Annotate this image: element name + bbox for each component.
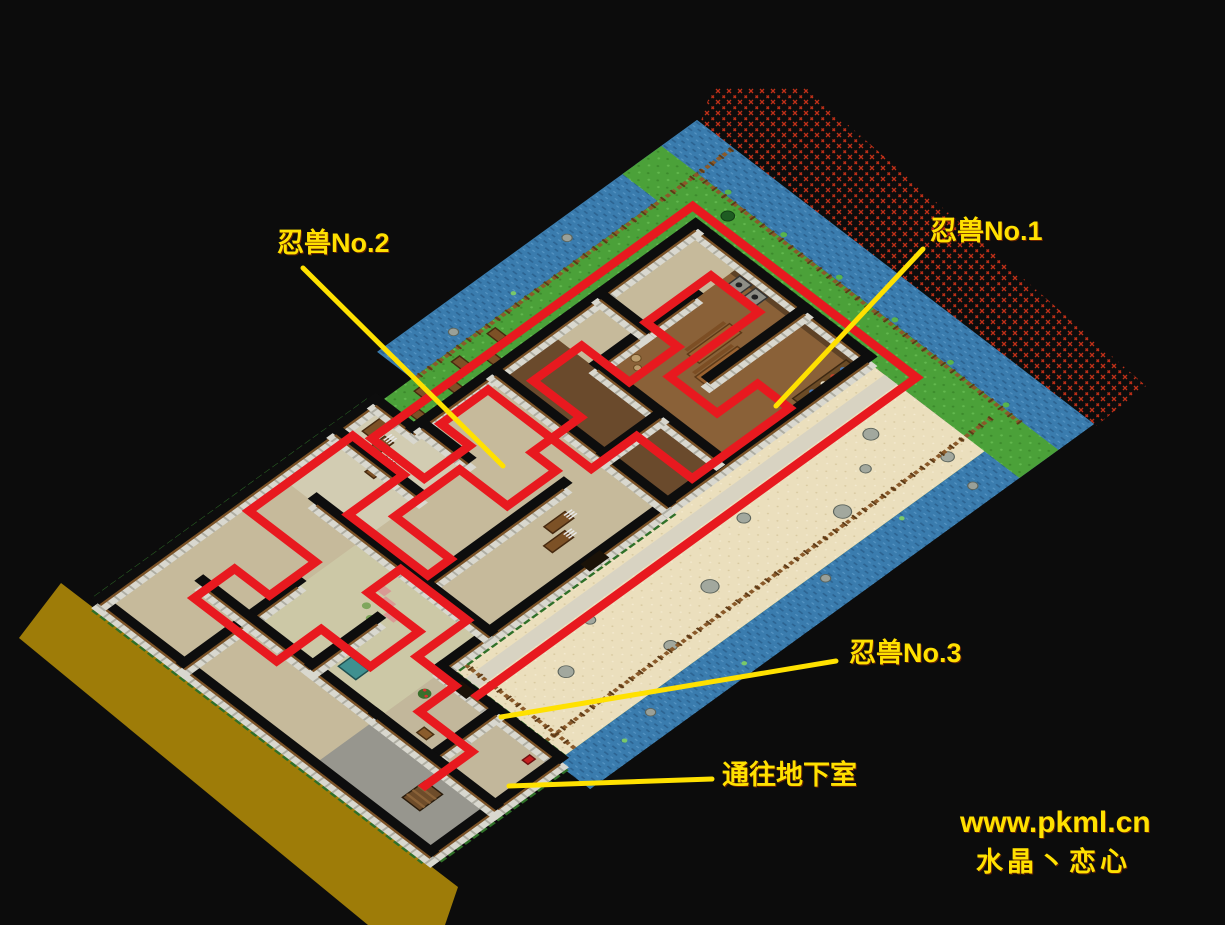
annotation-label-ninja2: 忍兽No.2	[277, 230, 390, 257]
watermark-site: www.pkml.cn	[960, 808, 1151, 838]
watermark-credit: 水晶丶恋心	[976, 849, 1131, 876]
annotation-label-ninja1: 忍兽No.1	[930, 218, 1043, 245]
annotation-label-basement: 通往地下室	[722, 762, 857, 789]
annotation-label-ninja3: 忍兽No.3	[849, 640, 962, 667]
map-screenshot: 忍兽No.2 忍兽No.1 忍兽No.3 通往地下室 www.pkml.cn 水…	[0, 0, 1225, 925]
map-canvas	[0, 0, 1225, 925]
